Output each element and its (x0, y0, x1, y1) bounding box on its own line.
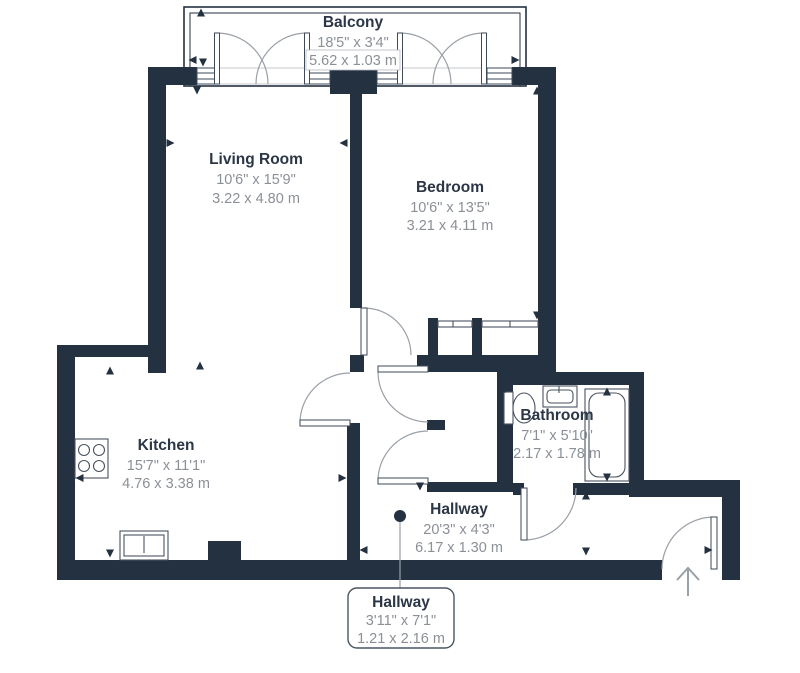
room-name: Kitchen (138, 437, 195, 454)
entry-door (662, 517, 717, 569)
room-name: Living Room (209, 151, 303, 168)
kitchen-door (300, 373, 350, 426)
window (487, 68, 512, 84)
room-dims-imperial: 10'6" x 13'5" (410, 200, 490, 216)
callout-dims-metric: 1.21 x 2.16 m (357, 631, 445, 647)
wardrobe-unit (438, 321, 538, 327)
kitchen-hob (75, 439, 108, 478)
bedroom-label: Bedroom 10'6" x 13'5" 3.21 x 4.11 m (407, 179, 494, 234)
living-room-door (361, 308, 411, 355)
balcony-label: Balcony 18'5" x 3'4" 5.62 x 1.03 m (306, 14, 400, 70)
room-dims-imperial: 7'1" x 5'10" (521, 428, 592, 444)
floor-plan-svg: Balcony 18'5" x 3'4" 5.62 x 1.03 m Livin… (0, 0, 800, 673)
room-dims-imperial: 20'3" x 4'3" (423, 522, 494, 538)
bedroom-door (378, 366, 428, 422)
room-dims-metric: 2.17 x 1.78 m (513, 446, 601, 462)
room-name: Bathroom (520, 407, 593, 424)
room-dims-metric: 3.22 x 4.80 m (212, 191, 300, 207)
room-dims-metric: 5.62 x 1.03 m (309, 53, 397, 69)
balcony-french-door-bedroom (398, 33, 487, 84)
entrance-arrow-icon (677, 568, 699, 596)
callout-name: Hallway (372, 594, 430, 611)
bathroom-sink (543, 386, 577, 407)
bathroom-label: Bathroom 7'1" x 5'10" 2.17 x 1.78 m (513, 407, 601, 462)
room-dims-imperial: 15'7" x 11'1" (127, 458, 205, 474)
hallway-label: Hallway 20'3" x 4'3" 6.17 x 1.30 m (415, 501, 503, 556)
room-dims-metric: 4.76 x 3.38 m (122, 476, 210, 492)
kitchen-sink (120, 531, 168, 560)
room-dims-imperial: 10'6" x 15'9" (216, 172, 296, 188)
room-name: Balcony (323, 14, 384, 31)
bathroom-door (521, 488, 576, 540)
window (309, 68, 330, 84)
room-name: Hallway (430, 501, 488, 518)
floor-plan: Balcony 18'5" x 3'4" 5.62 x 1.03 m Livin… (0, 0, 800, 673)
callout-anchor-dot (394, 510, 406, 522)
hallway-inner-door (378, 431, 428, 484)
callout-dims-imperial: 3'11" x 7'1" (366, 613, 436, 629)
room-dims-metric: 6.17 x 1.30 m (415, 540, 503, 556)
balcony-french-door-living (215, 33, 310, 84)
room-name: Bedroom (416, 179, 484, 196)
window (377, 68, 398, 84)
room-dims-imperial: 18'5" x 3'4" (317, 35, 388, 51)
room-dims-metric: 3.21 x 4.11 m (407, 218, 494, 234)
living-room-label: Living Room 10'6" x 15'9" 3.22 x 4.80 m (209, 151, 303, 207)
kitchen-label: Kitchen 15'7" x 11'1" 4.76 x 3.38 m (122, 437, 210, 492)
